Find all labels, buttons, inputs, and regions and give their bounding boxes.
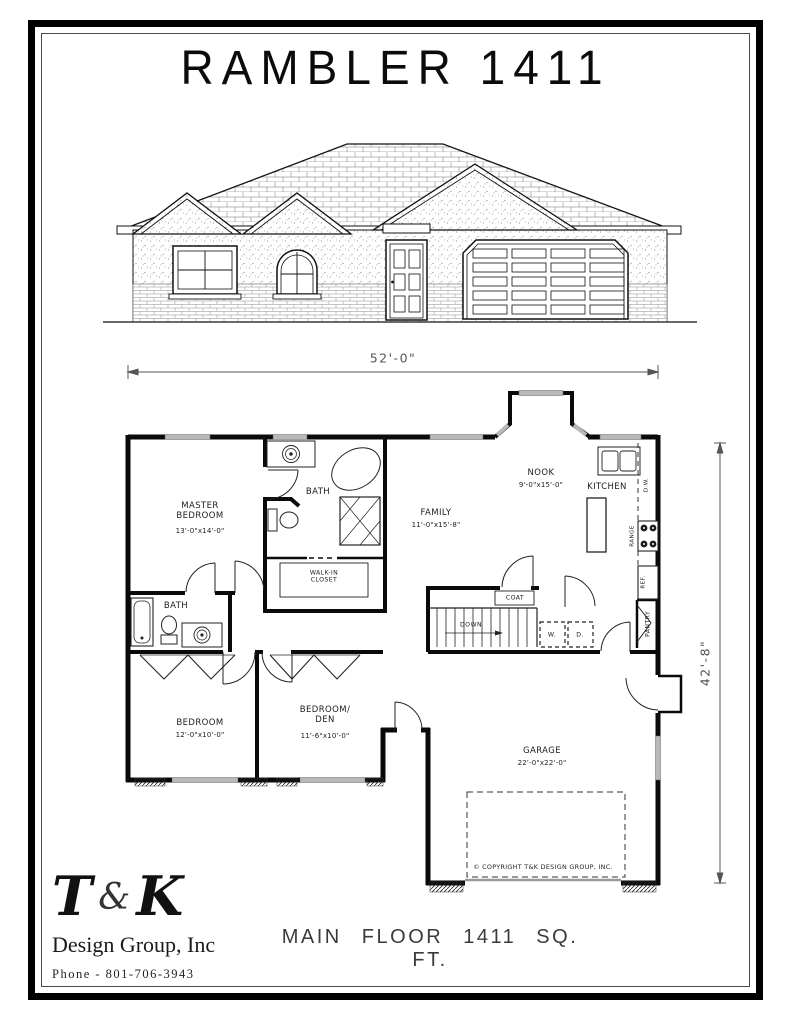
logo-letter-t: T	[52, 864, 92, 928]
bay-window	[495, 393, 590, 437]
master-toilet	[265, 499, 299, 531]
label-family: FAMILY	[421, 508, 452, 518]
floor-plan-drawing	[95, 345, 760, 900]
plan-title: RAMBLER 1411	[0, 39, 791, 96]
floor-plan: MASTER BEDROOM 13'-0"x14'-0" BATH WALK-I…	[95, 345, 760, 900]
label-pantry: PANTRY	[644, 611, 651, 637]
dimension-width-label: 52'-0"	[370, 351, 417, 366]
range	[638, 521, 658, 551]
logo-phone: Phone - 801-706-3943	[52, 967, 215, 982]
label-down: DOWN	[460, 621, 482, 628]
stairs	[428, 608, 537, 647]
kitchen-sink	[598, 447, 640, 475]
logo-letter-k: K	[136, 864, 183, 928]
label-dryer: D.	[576, 631, 584, 638]
label-master-size: 13'-0"x14'-0"	[176, 527, 225, 535]
label-garage-size: 22'-0"x22'-0"	[518, 759, 567, 767]
plan-sheet: RAMBLER 1411	[0, 0, 791, 1024]
label-coat: COAT	[506, 594, 524, 601]
dimension-right	[714, 443, 726, 883]
label-fridge: REF.	[641, 575, 648, 588]
label-kitchen: KITCHEN	[587, 482, 627, 492]
label-dishwasher: D.W.	[644, 478, 651, 492]
bedroom-window	[169, 246, 241, 299]
side-entry-bump	[658, 676, 681, 712]
windows	[165, 391, 661, 783]
logo-monogram: T&K	[52, 868, 215, 930]
label-den: BEDROOM/ DEN	[300, 705, 350, 725]
label-master-bath: BATH	[306, 487, 330, 497]
bedroom-closets	[140, 655, 360, 679]
label-bedroom-size: 12'-0"x10'-0"	[176, 731, 225, 739]
label-nook-size: 9'-0"x15'-0"	[519, 481, 563, 489]
logo-company-name: Design Group, Inc	[52, 932, 215, 958]
label-family-size: 11'-0"x15'-8"	[412, 521, 461, 529]
master-bath-vanity	[267, 441, 315, 467]
label-walkin-closet: WALK-IN CLOSET	[310, 570, 338, 585]
main-floor-area-label: MAIN FLOOR 1411 SQ. FT.	[270, 926, 590, 972]
garage-door	[463, 240, 628, 319]
dimension-depth-label: 42'-8"	[698, 640, 713, 687]
copyright-note: © COPYRIGHT T&K DESIGN GROUP, INC.	[473, 864, 613, 872]
label-hall-bath: BATH	[164, 601, 188, 611]
hall-bath-vanity	[182, 623, 222, 647]
hall-bath-tub	[131, 598, 153, 646]
label-master-bedroom: MASTER BEDROOM	[176, 501, 223, 521]
label-washer: W.	[548, 631, 556, 638]
label-range: RANGE	[630, 525, 637, 547]
label-nook: NOOK	[528, 468, 555, 478]
label-den-size: 11'-6"x10'-0"	[301, 732, 350, 740]
logo-ampersand: &	[92, 877, 136, 918]
down-arrow	[495, 631, 503, 636]
hall-bath-toilet	[161, 616, 177, 644]
door-knob	[391, 281, 394, 284]
front-elevation-drawing	[95, 122, 705, 337]
dimension-top	[128, 365, 658, 379]
master-tub	[324, 439, 388, 499]
kitchen-island	[587, 498, 606, 552]
designer-logo: T&K Design Group, Inc Phone - 801-706-39…	[52, 868, 215, 982]
shower	[340, 497, 380, 545]
label-bedroom: BEDROOM	[176, 718, 223, 728]
label-garage: GARAGE	[523, 746, 561, 756]
